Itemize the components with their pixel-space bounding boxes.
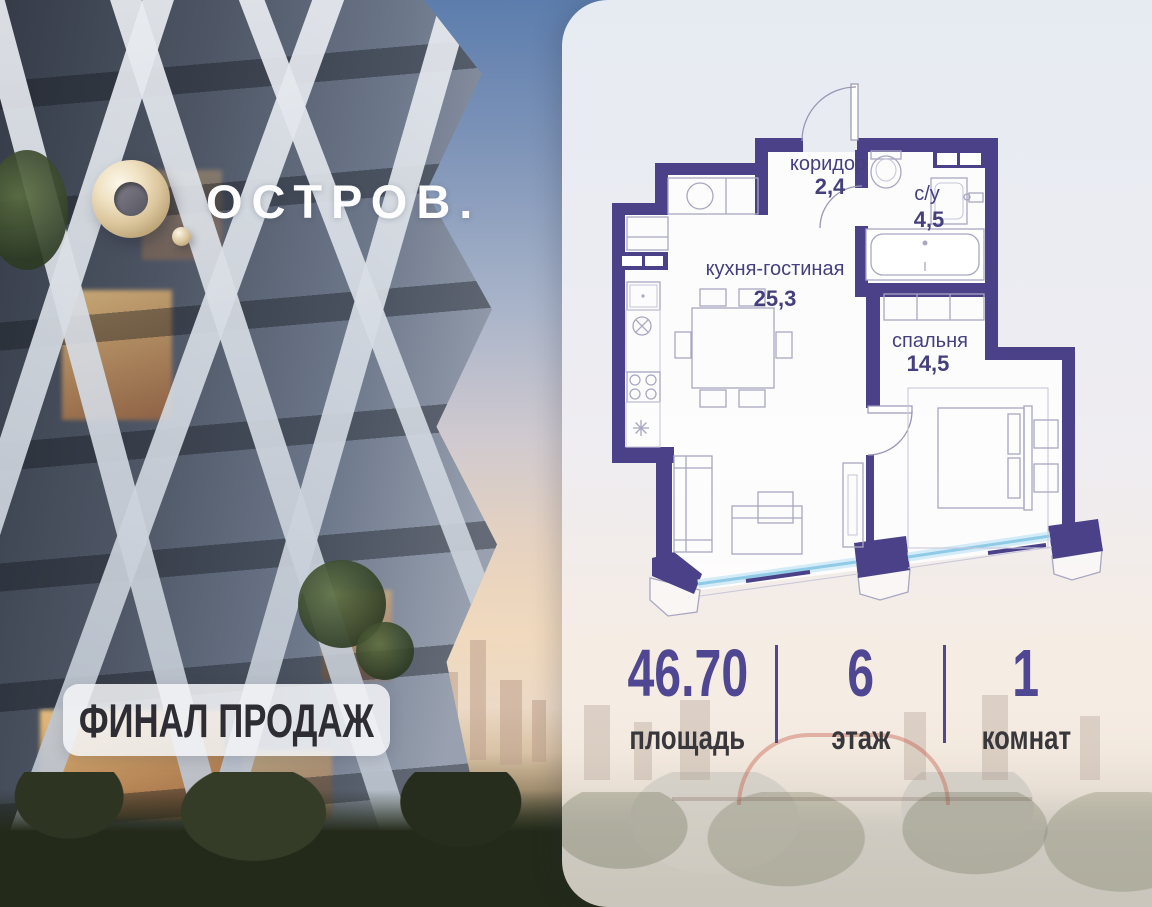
floorplan: коридор 2,4 с/у 4,5 кухня-гостиная 25,3 … [562, 0, 1152, 630]
stat-rooms-label: комнат [981, 719, 1070, 757]
bathtub-icon [866, 229, 984, 280]
stat-floor-label: этаж [831, 719, 890, 757]
bedroom-door-leaf [868, 406, 912, 413]
room-area-bedroom: 14,5 [907, 351, 950, 376]
apartment-stats: 46.70 площадь 6 этаж 1 комнат [600, 640, 1124, 757]
bridge-deck [672, 797, 1032, 801]
apartment-card[interactable]: коридор 2,4 с/у 4,5 кухня-гостиная 25,3 … [562, 0, 1152, 907]
room-label-corridor: коридор [790, 153, 866, 175]
listing-banner: ОСТРОВ. ФИНАЛ ПРОДАЖ [0, 0, 1152, 907]
skyline-tower [532, 700, 546, 762]
stat-area-value: 46.70 [627, 640, 748, 707]
room-label-bathroom: с/у [914, 183, 940, 205]
card-trees-silhouette [562, 792, 1152, 907]
stat-area: 46.70 площадь [600, 640, 775, 757]
room-label-kitchen-living: кухня-гостиная [706, 258, 845, 280]
final-sale-badge: ФИНАЛ ПРОДАЖ [63, 684, 390, 756]
skyline-tower [500, 680, 522, 765]
balcony-plant [356, 622, 414, 680]
brand-name: ОСТРОВ. [206, 174, 481, 229]
room-area-bathroom: 4,5 [914, 207, 945, 232]
room-area-kitchen-living: 25,3 [754, 286, 797, 311]
entrance-door-leaf [851, 84, 858, 140]
final-sale-badge-label: ФИНАЛ ПРОДАЖ [79, 693, 374, 748]
logo-ring-icon [92, 160, 170, 238]
room-area-corridor: 2,4 [815, 174, 846, 199]
stat-rooms-value: 1 [1013, 640, 1040, 707]
stat-floor: 6 этаж [778, 640, 943, 757]
skyline-tower [470, 640, 486, 760]
stat-area-label: площадь [630, 719, 746, 757]
logo-dot-icon [172, 227, 191, 246]
stat-rooms: 1 комнат [946, 640, 1106, 757]
room-label-bedroom: спальня [892, 330, 968, 352]
stat-floor-value: 6 [847, 640, 874, 707]
logo-ring-hole [114, 182, 148, 216]
entrance-door-arc [802, 87, 856, 141]
